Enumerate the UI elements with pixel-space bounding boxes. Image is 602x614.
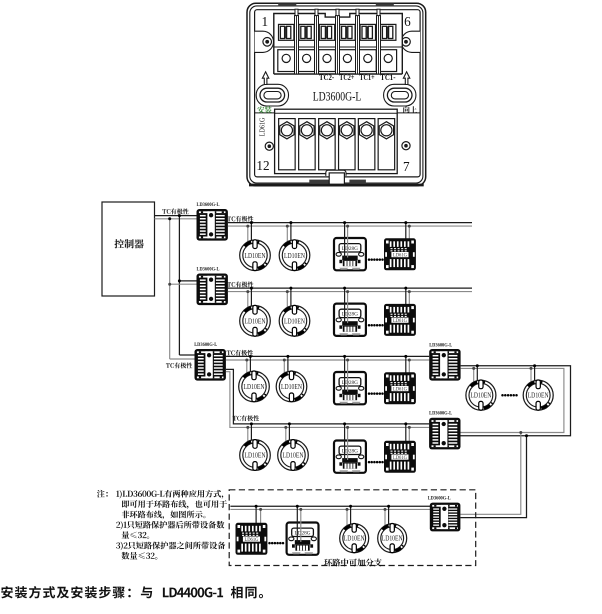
- svg-text:LD61G: LD61G: [258, 118, 266, 137]
- svg-text:LD61G: LD61G: [393, 253, 408, 258]
- svg-text:LD10EN: LD10EN: [284, 317, 305, 325]
- svg-text:LD3600G-L: LD3600G-L: [313, 88, 362, 103]
- svg-text:LD10EN: LD10EN: [245, 252, 266, 260]
- svg-text:6: 6: [404, 14, 411, 29]
- svg-text:LD10EN: LD10EN: [382, 535, 403, 543]
- svg-text:LD3600G-L: LD3600G-L: [197, 202, 220, 208]
- svg-text:LD10EN: LD10EN: [284, 252, 305, 260]
- svg-text:LD61G: LD61G: [393, 319, 408, 324]
- svg-text:LD3600G-L: LD3600G-L: [197, 266, 220, 272]
- svg-text:7: 7: [403, 159, 410, 174]
- svg-text:TC1+: TC1+: [359, 73, 375, 82]
- svg-text:TC2-: TC2-: [319, 73, 334, 82]
- svg-text:LD10EN: LD10EN: [244, 383, 265, 391]
- svg-text:LD61G: LD61G: [244, 538, 259, 543]
- svg-text:LD3600G-L: LD3600G-L: [429, 342, 452, 348]
- svg-text:LD10EN: LD10EN: [283, 452, 304, 460]
- svg-text:LD61G: LD61G: [393, 456, 408, 461]
- svg-text:LD10EN: LD10EN: [470, 392, 491, 400]
- svg-text:LD10EN: LD10EN: [281, 383, 302, 391]
- svg-text:LD10EN: LD10EN: [528, 392, 549, 400]
- svg-text:1: 1: [262, 14, 269, 29]
- svg-text:LD10EN: LD10EN: [344, 535, 365, 543]
- svg-text:LD3600G-L: LD3600G-L: [428, 496, 451, 502]
- svg-text:LD10EN: LD10EN: [245, 317, 266, 325]
- svg-text:12: 12: [256, 158, 269, 173]
- svg-text:LD3600G-L: LD3600G-L: [429, 411, 452, 417]
- svg-text:LD10EN: LD10EN: [245, 452, 266, 460]
- svg-text:LD61G: LD61G: [393, 387, 408, 392]
- svg-text:TC1-: TC1-: [380, 73, 395, 82]
- svg-text:TC2+: TC2+: [339, 73, 355, 82]
- svg-text:LD3600G-L: LD3600G-L: [194, 342, 217, 348]
